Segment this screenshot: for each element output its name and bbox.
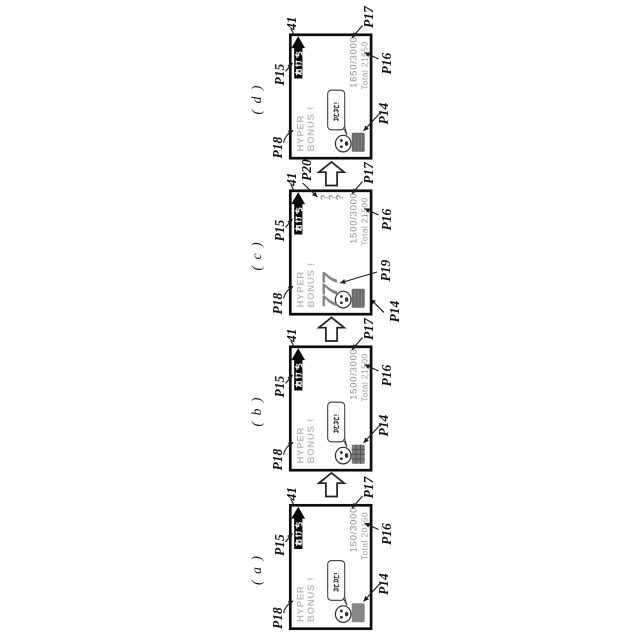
- svg-text:BONUS !: BONUS !: [306, 577, 317, 622]
- svg-text:P20: P20: [299, 159, 314, 181]
- svg-text:HYPER: HYPER: [296, 585, 307, 622]
- svg-text:HYPER: HYPER: [296, 427, 307, 464]
- svg-text:BONUS !: BONUS !: [306, 262, 317, 307]
- svg-text:P17: P17: [361, 317, 376, 340]
- svg-text:P17: P17: [361, 476, 376, 499]
- svg-text:Total 21650: Total 21650: [360, 42, 370, 90]
- svg-text:P17: P17: [361, 5, 376, 28]
- svg-text:( c ): ( c ): [249, 241, 264, 271]
- svg-text:P19: P19: [378, 260, 393, 282]
- svg-text:?: ?: [335, 194, 346, 200]
- svg-text:BONUS !: BONUS !: [306, 106, 317, 151]
- svg-text:P16: P16: [379, 365, 394, 387]
- svg-text:P15: P15: [272, 376, 287, 398]
- svg-text:( b ): ( b ): [249, 396, 264, 427]
- svg-text:Total 20150: Total 20150: [360, 512, 370, 560]
- svg-text:P16: P16: [379, 209, 394, 231]
- svg-text:1500/3000: 1500/3000: [348, 348, 359, 400]
- svg-text:( d ): ( d ): [249, 84, 264, 115]
- svg-text:P14: P14: [387, 301, 402, 323]
- svg-text:P18: P18: [270, 449, 285, 471]
- svg-text:P15: P15: [272, 534, 287, 556]
- svg-text:Total 21500: Total 21500: [360, 354, 370, 402]
- svg-text:BONUS !: BONUS !: [306, 418, 317, 463]
- svg-text:P16: P16: [379, 53, 394, 75]
- svg-text:P18: P18: [270, 607, 285, 629]
- svg-text:1650/3000: 1650/3000: [348, 36, 359, 88]
- svg-text:( a ): ( a ): [249, 555, 264, 586]
- svg-text:1500/3000: 1500/3000: [348, 192, 359, 244]
- svg-text:P14: P14: [376, 573, 391, 595]
- svg-text:P15: P15: [272, 220, 287, 242]
- svg-text:HYPER: HYPER: [296, 271, 307, 308]
- svg-text:HYPER: HYPER: [296, 115, 307, 152]
- svg-text:P14: P14: [376, 415, 391, 437]
- svg-text:Total 21500: Total 21500: [360, 198, 370, 246]
- svg-text:777: 777: [318, 271, 342, 308]
- svg-text:P14: P14: [376, 103, 391, 125]
- svg-text:P16: P16: [379, 523, 394, 545]
- svg-text:P18: P18: [270, 137, 285, 159]
- svg-text:150/3000: 150/3000: [348, 507, 359, 553]
- svg-text:P17: P17: [361, 161, 376, 184]
- svg-text:P15: P15: [272, 64, 287, 86]
- svg-text:P18: P18: [270, 293, 285, 315]
